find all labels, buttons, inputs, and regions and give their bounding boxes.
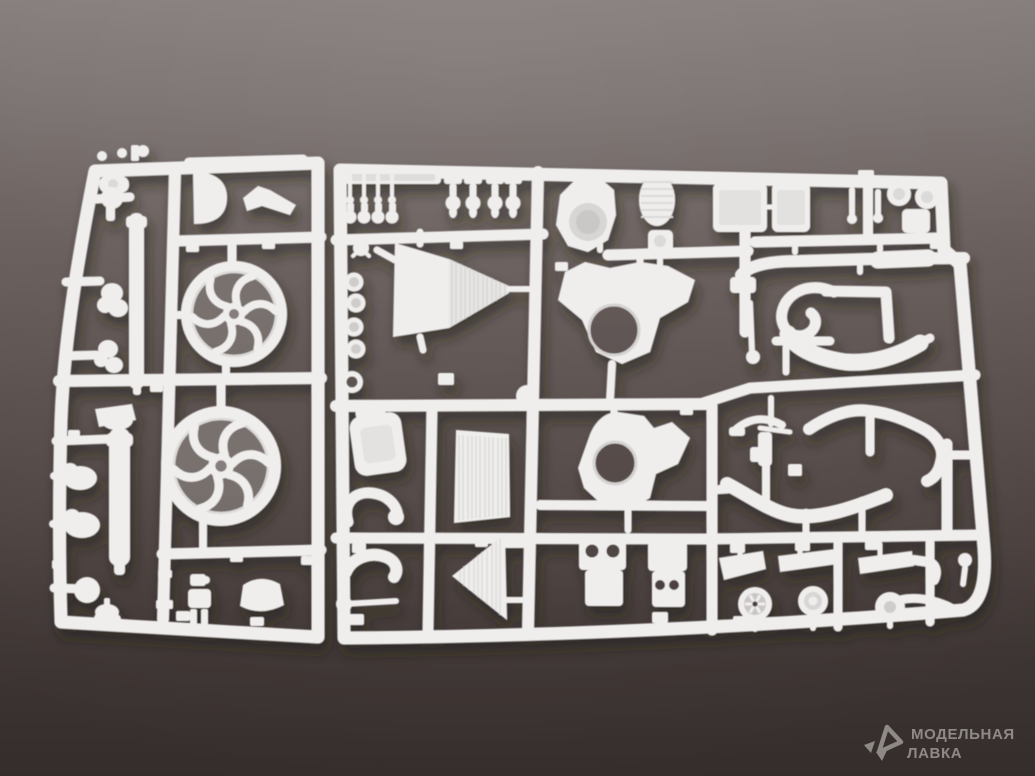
svg-text:ЛАВКА: ЛАВКА [907, 745, 962, 762]
svg-text:МОДЕЛЬНАЯ: МОДЕЛЬНАЯ [911, 726, 1015, 743]
